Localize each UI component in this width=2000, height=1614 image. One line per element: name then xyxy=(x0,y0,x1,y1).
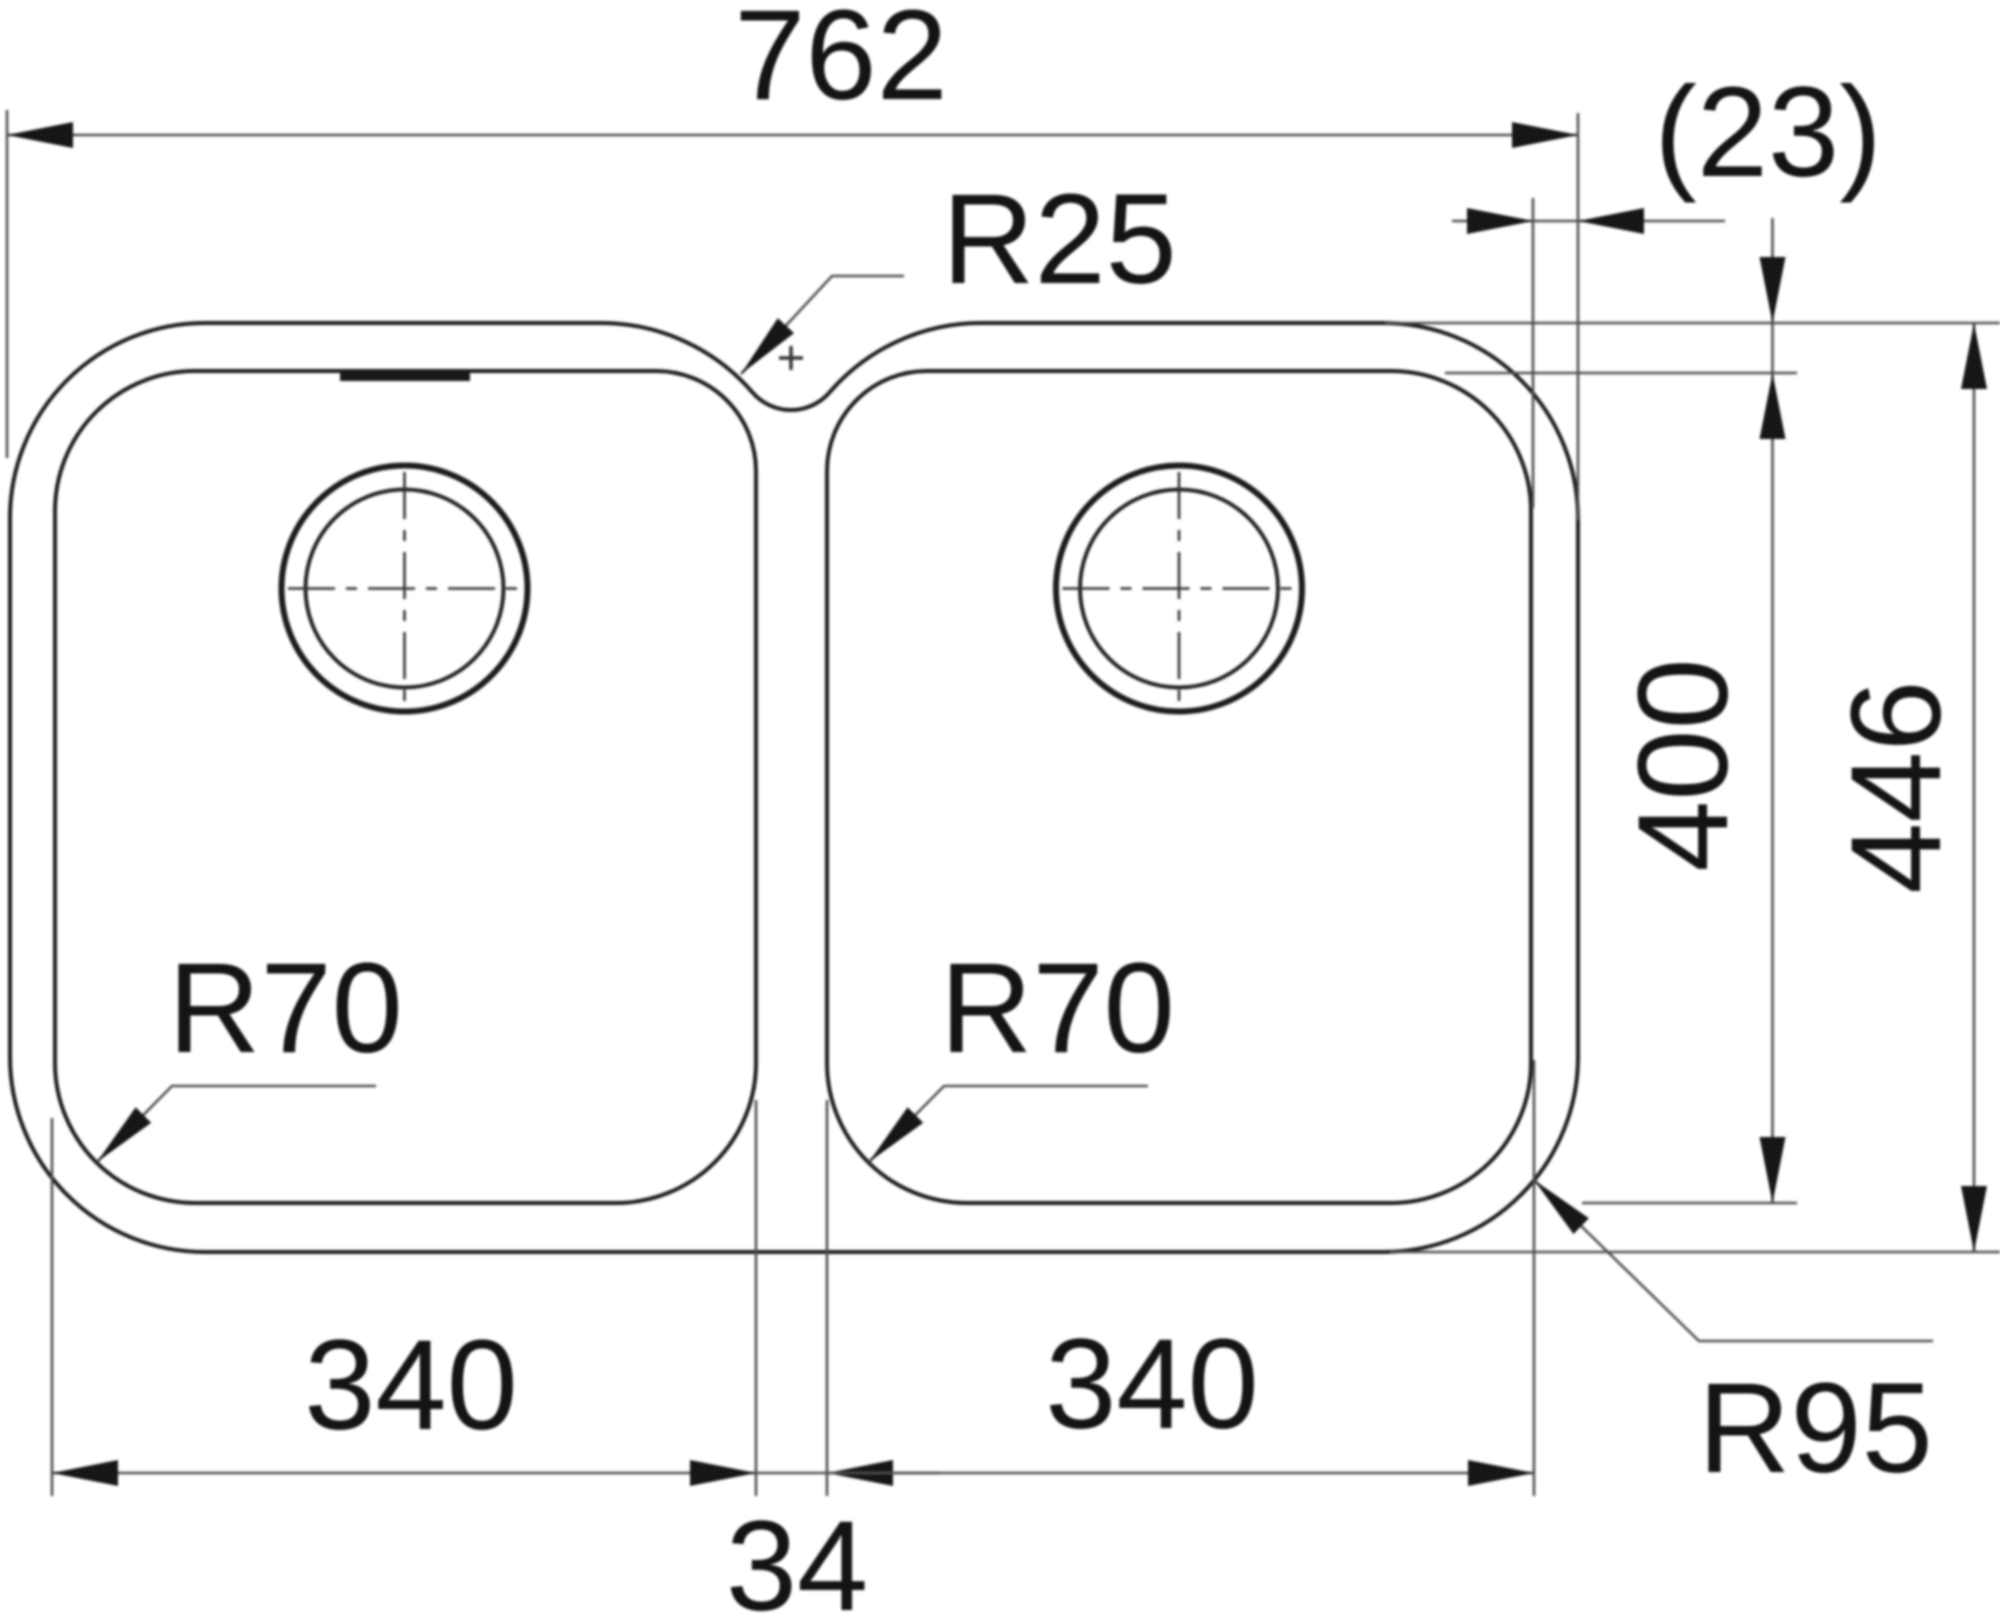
svg-text:(23): (23) xyxy=(1654,61,1882,204)
svg-text:34: 34 xyxy=(726,1495,868,1614)
svg-text:R95: R95 xyxy=(1698,1357,1933,1500)
svg-text:340: 340 xyxy=(304,1314,518,1457)
svg-text:340: 340 xyxy=(1045,1313,1259,1456)
svg-text:400: 400 xyxy=(1612,658,1755,872)
svg-text:762: 762 xyxy=(734,0,948,127)
svg-text:446: 446 xyxy=(1825,680,1968,894)
svg-text:R70: R70 xyxy=(168,937,403,1080)
svg-text:R70: R70 xyxy=(940,937,1175,1080)
svg-text:R25: R25 xyxy=(942,168,1177,311)
